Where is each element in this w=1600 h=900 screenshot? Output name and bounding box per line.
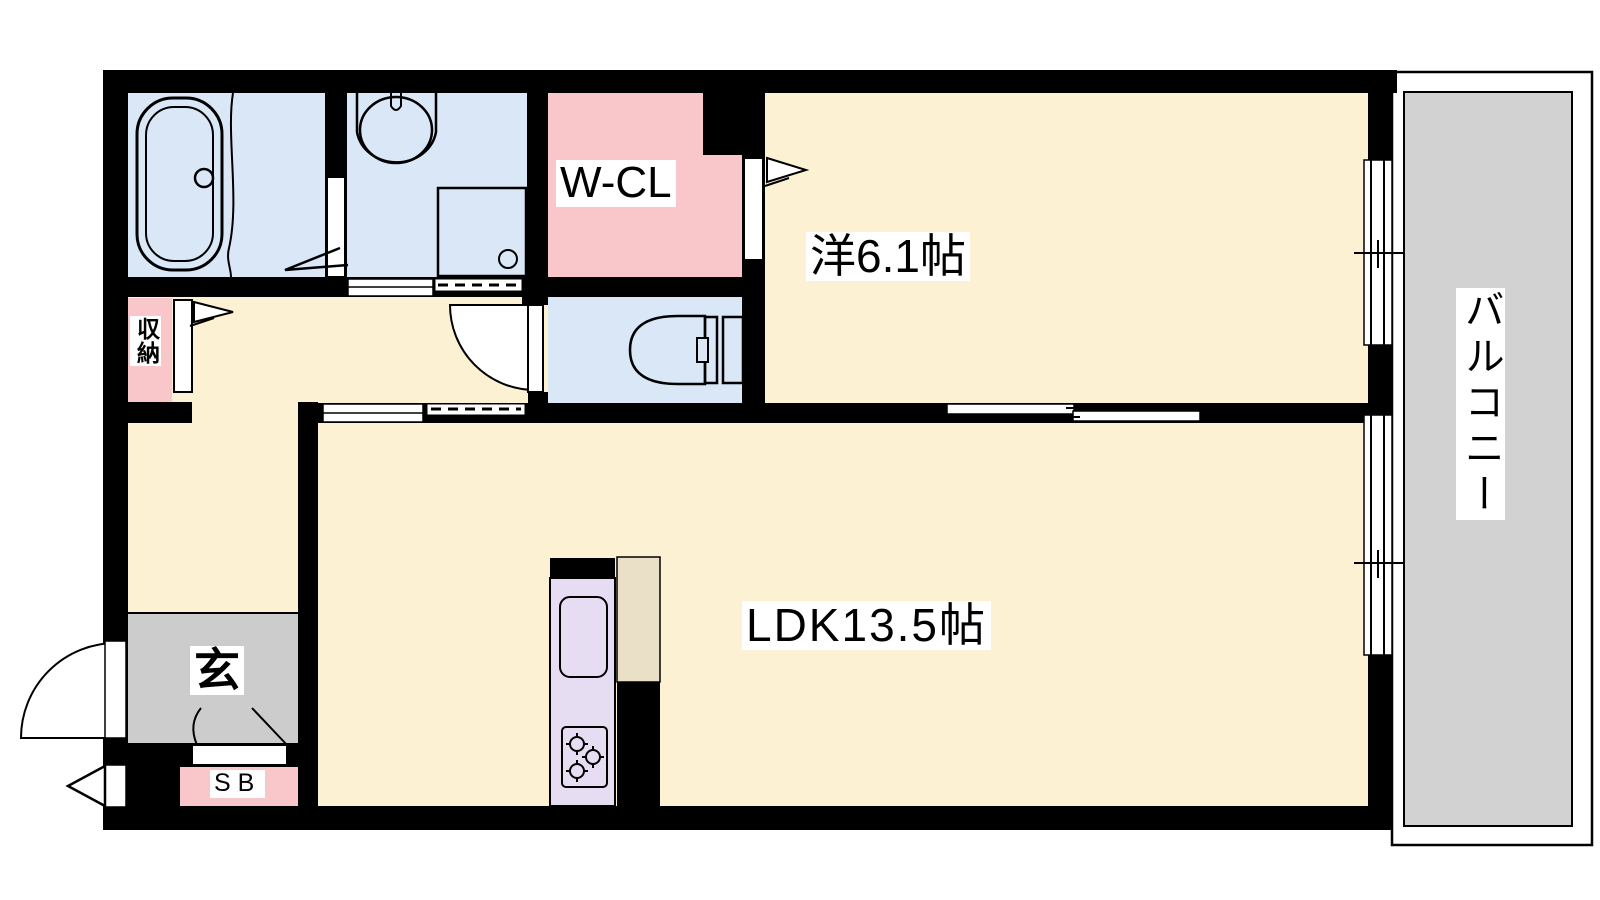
wall-toilet-doorframe-top [522,297,548,305]
shoe-box-label: SB [210,770,265,798]
window-frame [1364,415,1392,655]
wall-washroom-wcl [527,93,548,277]
entrance-step [192,745,287,765]
western-sliding-door-panel-right [1073,411,1200,421]
refrigerator-space [617,557,660,682]
western-room-label: 洋6.1帖 [806,232,970,281]
entry-opening [105,765,126,807]
balcony-label: バルコニー [1456,288,1505,520]
wall-under-storage [128,402,192,423]
wall-kitchen-stub [550,558,615,578]
entry-arrow-icon [68,766,105,806]
wall-wcl-notch [703,93,742,155]
walk-in-closet-label: W-CL [556,160,676,207]
wall-toilet-doorframe-bottom [528,392,548,403]
front-door-leaf [105,641,126,738]
front-door-swing-arc [21,643,116,738]
western-sliding-door-panel-left [947,404,1074,414]
toilet-floor [548,297,743,403]
bathroom-door [327,177,345,277]
wall-kitchen-side [617,682,660,806]
wall-left-of-sb [128,767,180,808]
toilet-flush-notch [697,338,708,362]
wcl-door [744,158,763,260]
wall-hall-ldk [298,402,318,806]
toilet-door-leaf [528,305,543,392]
wall-bottom [103,806,1392,830]
ldk-sliding-door-rail [427,404,525,415]
storage-label: 収納 [130,316,161,366]
bathroom-floor [128,93,325,277]
entrance-label: 玄 [190,646,244,695]
floor-plan: W-CL 洋6.1帖 LDK13.5帖 バルコニー 玄 SB 収納 [0,0,1600,900]
ldk-label: LDK13.5帖 [742,601,991,650]
floor-plan-drawing [0,0,1600,900]
storage-door [174,300,192,392]
wall-top [103,70,1397,93]
hall-floor [128,403,298,613]
